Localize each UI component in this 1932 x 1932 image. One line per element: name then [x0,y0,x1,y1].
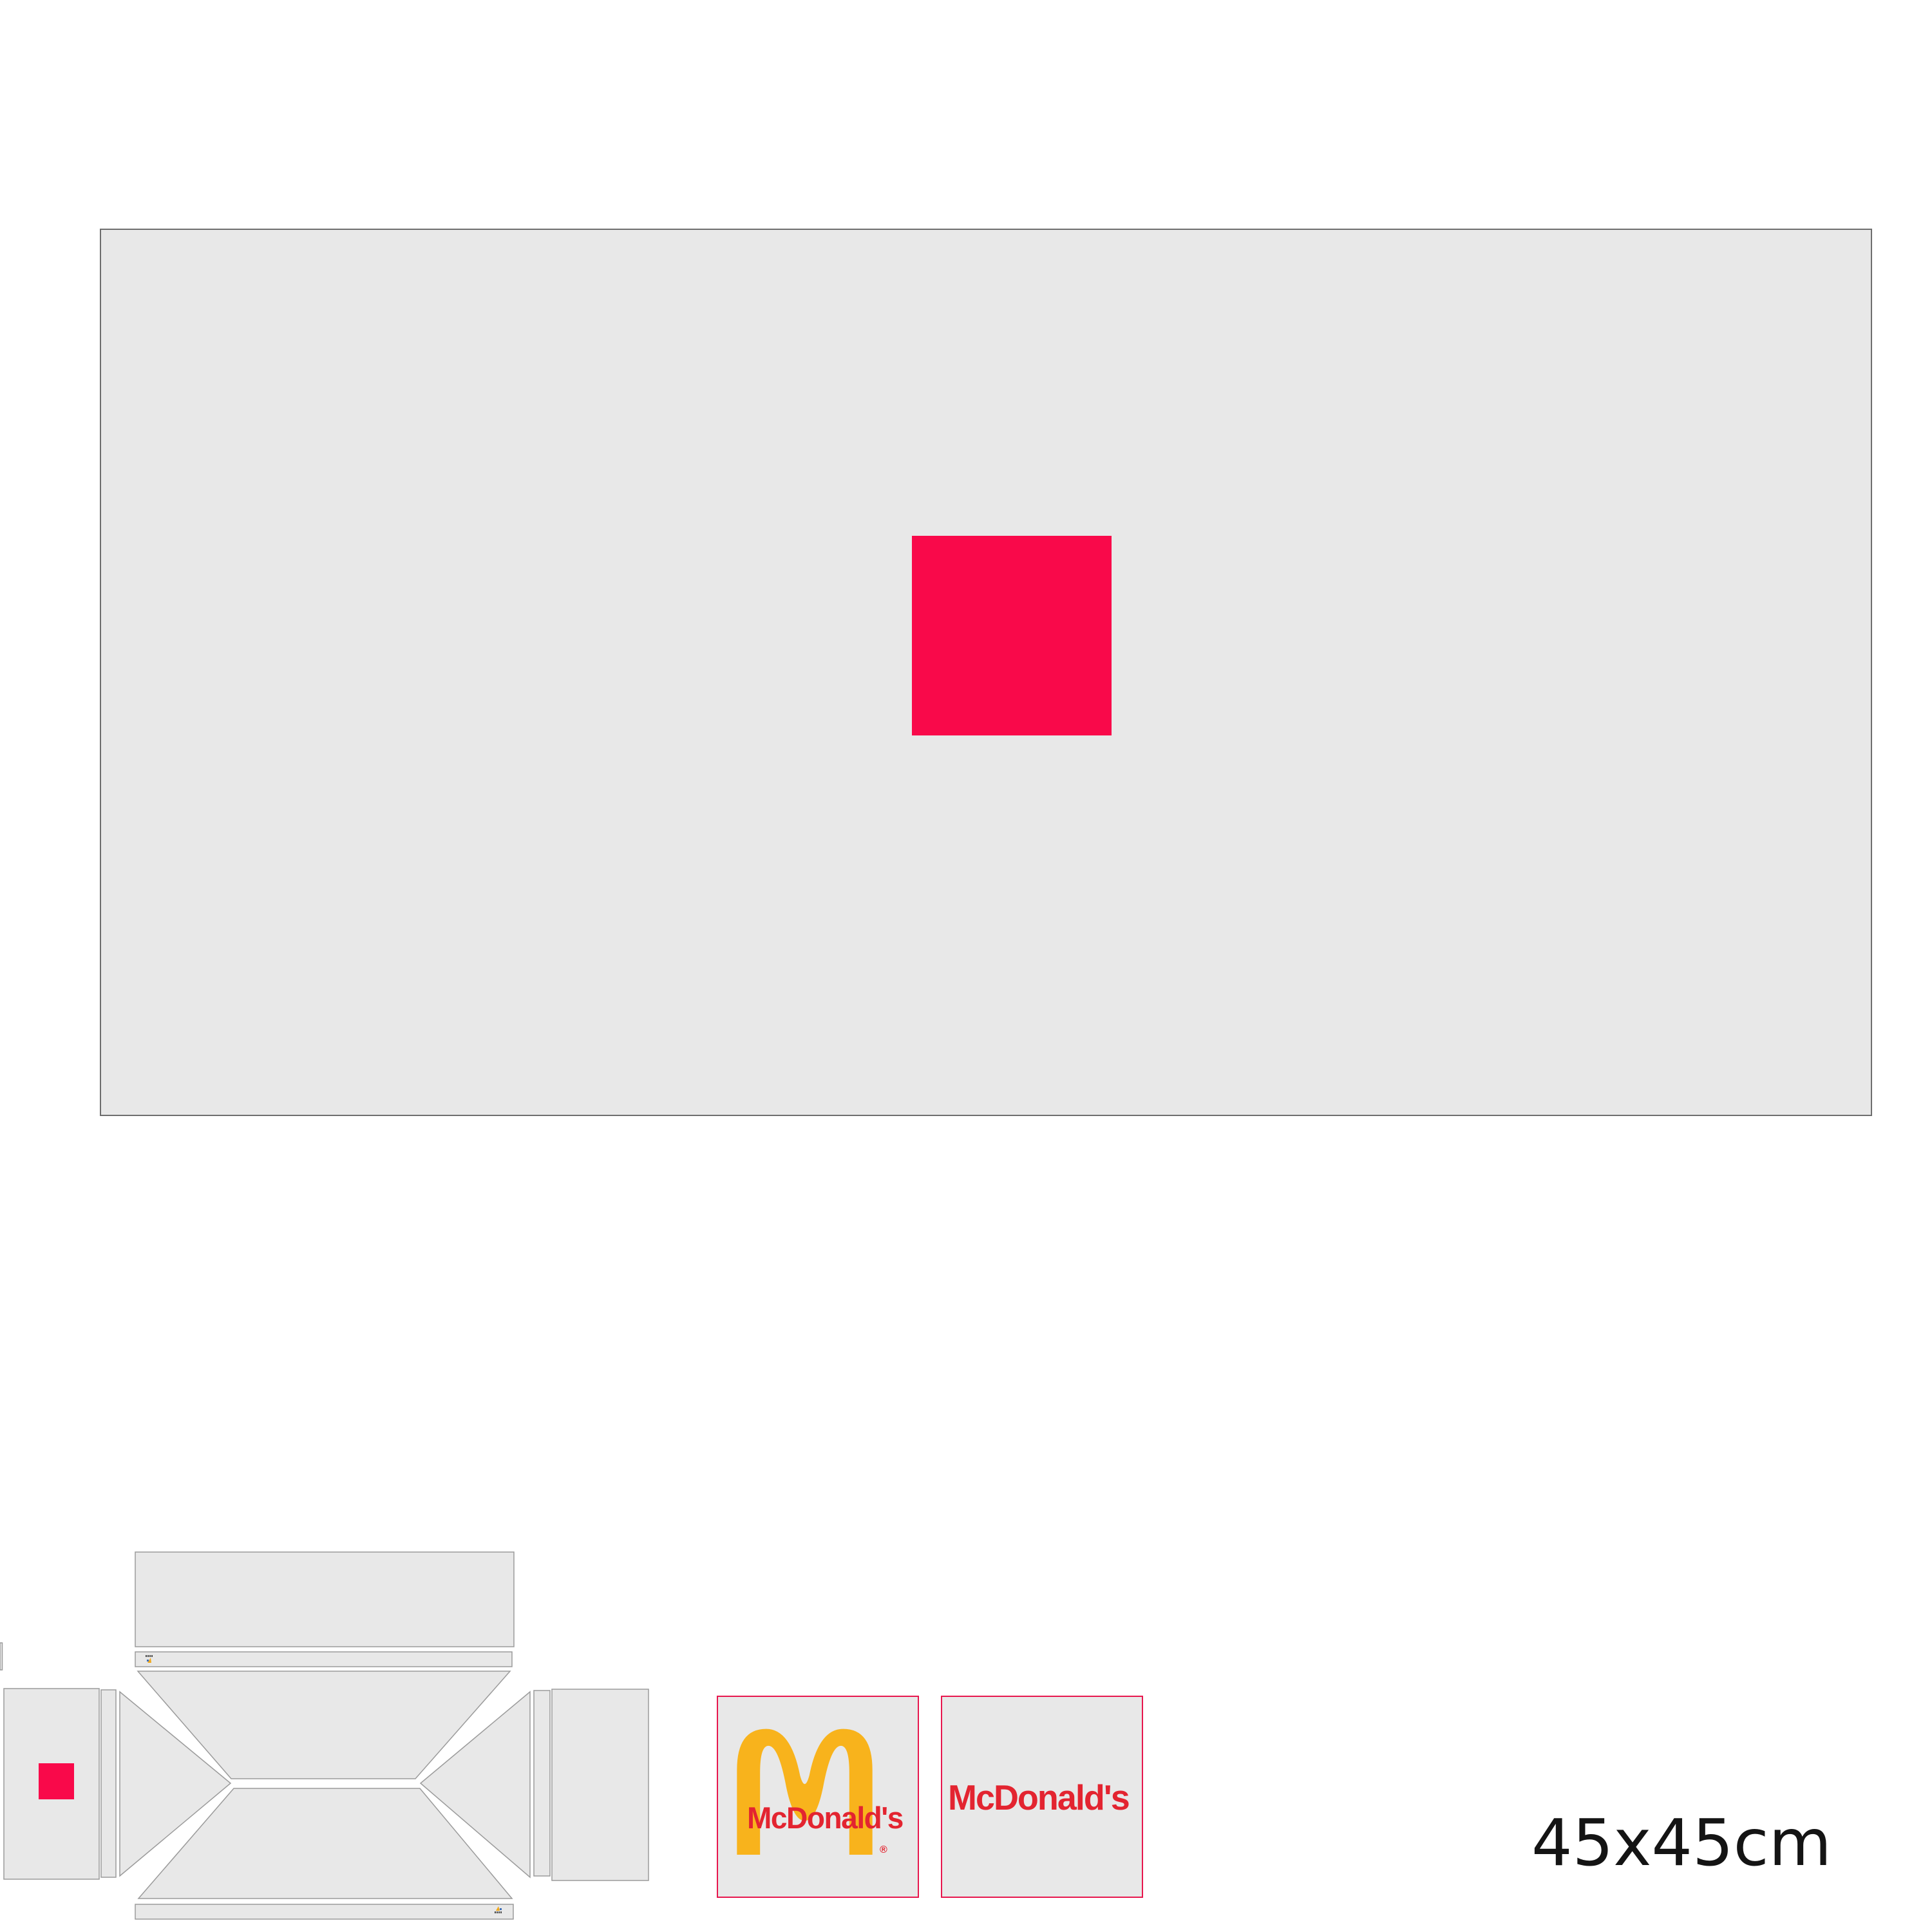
golden-arches-icon [728,1725,882,1855]
accent-rect [39,1763,74,1799]
edge-sliver [0,1643,3,1670]
lid-panel [135,1552,514,1647]
mcdonalds-wordmark: McDonald's [747,1803,903,1833]
brand-tile-logo: McDonald's ® [717,1696,919,1898]
glue-strip-bottom [135,1904,513,1919]
artboard [100,229,1872,1116]
mcdonalds-wordmark: McDonald's [948,1780,1129,1815]
glue-strip-top [135,1652,512,1667]
hinge-strip-right [534,1690,550,1876]
design-proof-sheet: McDonald's ® McDonald's 45x45cm [0,0,1932,1932]
registered-trademark-icon: ® [880,1845,887,1855]
accent-square [912,536,1112,735]
brand-tile-wordmark: McDonald's [941,1696,1143,1898]
packaging-dieline [0,1546,650,1926]
end-panel-right [552,1689,649,1880]
size-label: 45x45cm [1531,1811,1832,1875]
hinge-strip-left [101,1690,116,1877]
